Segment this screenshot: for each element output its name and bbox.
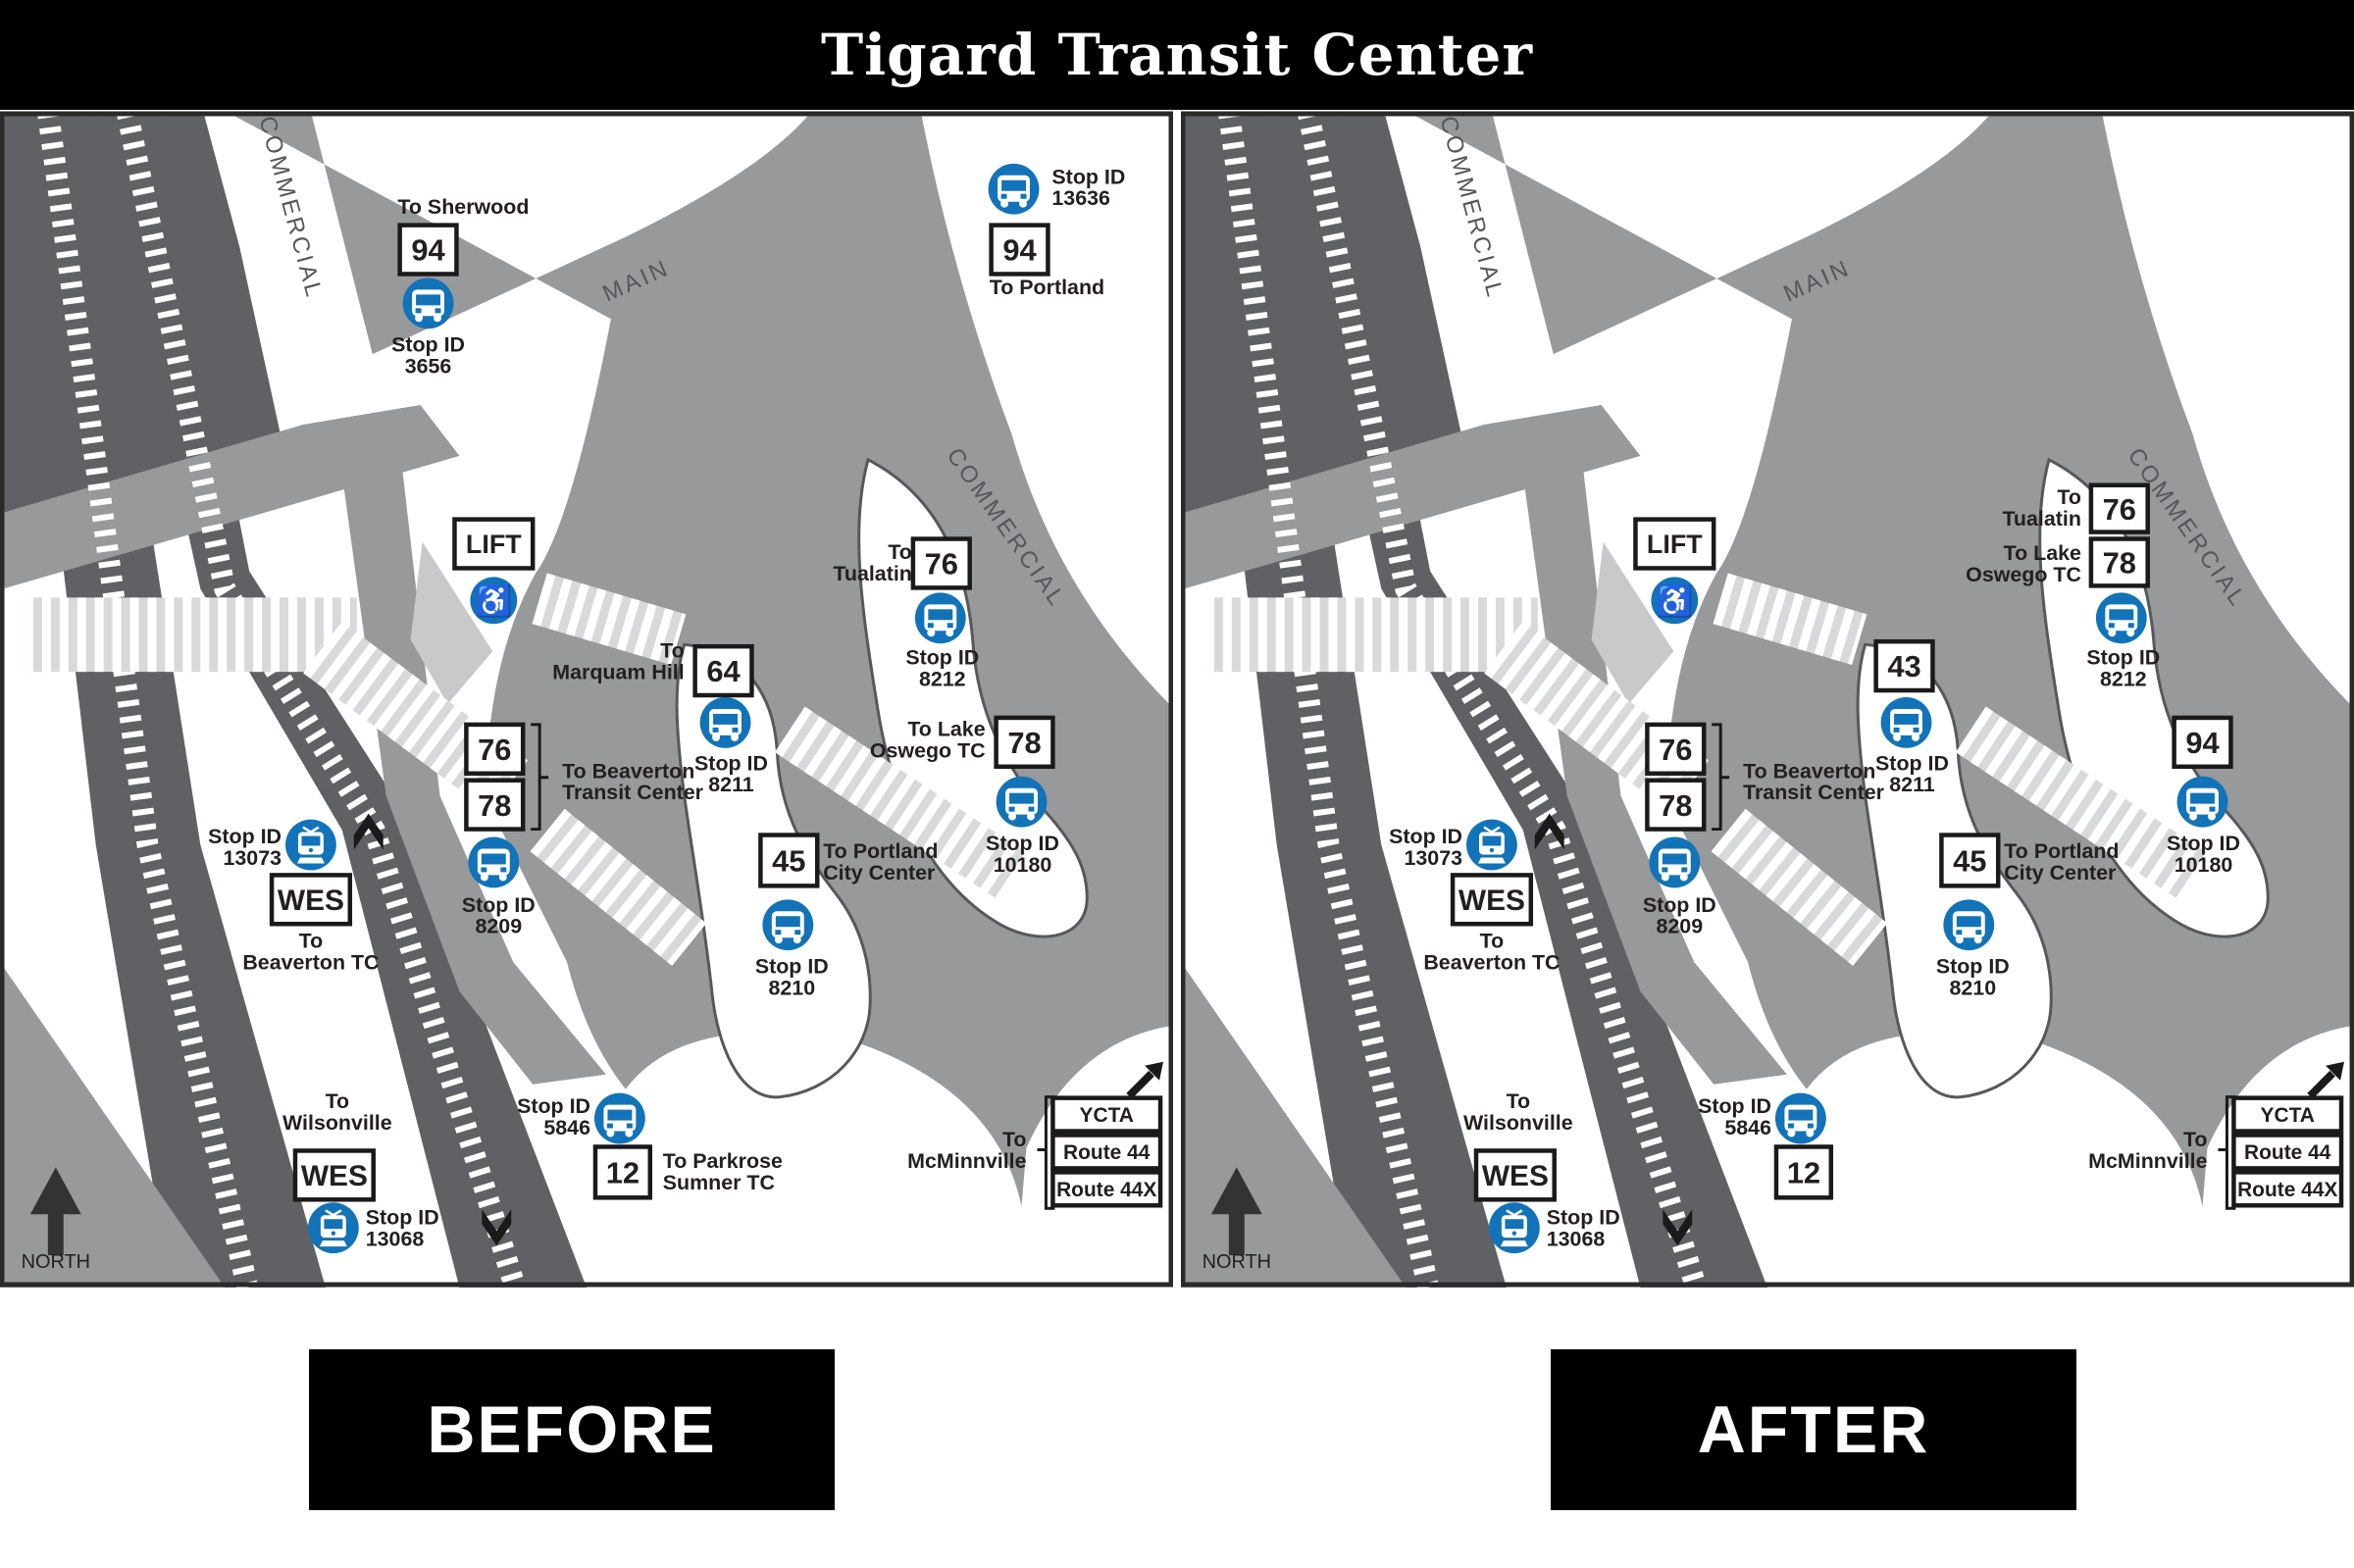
before-label: BEFORE — [427, 1391, 716, 1468]
svg-text:To: To — [2183, 1128, 2208, 1151]
svg-text:Tualatin: Tualatin — [2002, 507, 2080, 531]
map-panel-before: COMMERCIALMAINCOMMERCIALLIFT♿7678To Beav… — [0, 110, 1173, 1290]
after-label: AFTER — [1698, 1391, 1930, 1468]
svg-text:♿: ♿ — [475, 583, 512, 618]
ycta-box: YCTA — [1052, 1098, 1160, 1132]
svg-text:Stop ID: Stop ID — [1936, 955, 2010, 979]
svg-text:To Lake: To Lake — [2004, 541, 2081, 565]
svg-text:Stop ID: Stop ID — [905, 646, 979, 670]
svg-text:8210: 8210 — [768, 977, 815, 1000]
svg-text:To: To — [1002, 1128, 1027, 1151]
svg-text:78: 78 — [2103, 546, 2136, 581]
route-44-box: Route 44 — [2233, 1136, 2341, 1169]
route-44x-box: Route 44X — [2233, 1172, 2341, 1205]
route-box-94-sherwood: 94 — [400, 226, 457, 275]
before-label-box: BEFORE — [309, 1349, 835, 1510]
route-box-45: 45 — [1941, 835, 1998, 886]
svg-text:13636: 13636 — [1051, 186, 1110, 210]
svg-text:City Center: City Center — [823, 861, 935, 885]
page-title: Tigard Transit Center — [821, 22, 1533, 88]
svg-text:Sumner TC: Sumner TC — [663, 1171, 775, 1194]
route-box-78-lake-oswego: 78 — [997, 718, 1053, 767]
rail-stop-icon-13068 — [308, 1202, 359, 1253]
svg-text:To Parkrose: To Parkrose — [663, 1149, 783, 1173]
route-box-94-commercial: 94 — [2175, 718, 2231, 767]
bus-stop-icon-8211 — [700, 697, 751, 748]
svg-text:To Beaverton: To Beaverton — [1743, 759, 1875, 783]
route-box-76-bay: 76 — [1647, 725, 1704, 774]
route-44-box: Route 44 — [1052, 1136, 1160, 1169]
to-beaverton-tc-label: To BeavertonTransit Center — [562, 759, 703, 804]
svg-text:Oswego TC: Oswego TC — [1966, 563, 2081, 586]
bus-stop-icon-8210 — [1943, 899, 1994, 950]
svg-text:76: 76 — [1659, 733, 1692, 767]
svg-text:To Portland: To Portland — [2004, 839, 2119, 863]
bus-stop-icon-3656 — [403, 278, 454, 329]
svg-text:94: 94 — [2185, 726, 2219, 760]
svg-text:Beaverton TC: Beaverton TC — [242, 951, 379, 975]
route-44x-box: Route 44X — [1052, 1172, 1160, 1205]
svg-text:WES: WES — [278, 885, 344, 917]
svg-text:76: 76 — [2103, 492, 2136, 527]
svg-text:LIFT: LIFT — [1647, 530, 1703, 559]
to-beaverton-tc-label: To BeavertonTransit Center — [1743, 759, 1884, 804]
route-box-94-portland: 94 — [992, 226, 1049, 275]
svg-text:5846: 5846 — [1724, 1116, 1771, 1139]
svg-text:To: To — [888, 540, 912, 564]
svg-text:YCTA: YCTA — [2261, 1104, 2315, 1127]
svg-text:WES: WES — [301, 1160, 368, 1192]
transit-map-after: COMMERCIALMAINCOMMERCIALLIFT♿7678To Beav… — [1181, 110, 2354, 1290]
route-box-78-lake-oswego: 78 — [2091, 539, 2148, 586]
route-box-78-bay: 78 — [1647, 781, 1704, 830]
svg-text:NORTH: NORTH — [22, 1251, 90, 1273]
svg-text:5846: 5846 — [543, 1116, 590, 1139]
svg-text:City Center: City Center — [2004, 861, 2116, 885]
svg-text:Stop ID: Stop ID — [1875, 751, 1949, 775]
svg-text:Route 44: Route 44 — [1063, 1141, 1151, 1164]
svg-text:Beaverton TC: Beaverton TC — [1423, 951, 1560, 975]
svg-text:Stop ID: Stop ID — [986, 832, 1059, 855]
svg-text:To: To — [2057, 485, 2081, 509]
page: Tigard Transit Center COMMERCIALMAINCOMM… — [0, 0, 2354, 1568]
to-portland-label: To Portland — [990, 276, 1104, 299]
route-box-12: 12 — [1776, 1146, 1831, 1197]
svg-text:McMinnville: McMinnville — [907, 1149, 1026, 1173]
route-box-64: 64 — [695, 646, 752, 695]
svg-text:Stop ID: Stop ID — [755, 955, 829, 979]
svg-text:13073: 13073 — [1405, 846, 1463, 870]
svg-text:12: 12 — [1787, 1156, 1820, 1190]
svg-text:To Beaverton: To Beaverton — [562, 759, 694, 783]
svg-text:To Portland: To Portland — [823, 839, 938, 863]
svg-text:To Sherwood: To Sherwood — [397, 195, 529, 219]
route-box-76-tualatin: 76 — [913, 539, 970, 588]
svg-text:Stop ID: Stop ID — [1643, 893, 1716, 917]
bus-stop-icon-13636 — [989, 164, 1040, 215]
svg-text:94: 94 — [1002, 233, 1036, 268]
svg-text:13068: 13068 — [366, 1228, 425, 1251]
svg-text:Stop ID: Stop ID — [694, 751, 768, 775]
rail-stop-icon-13073 — [285, 820, 336, 871]
svg-text:To: To — [299, 930, 324, 953]
bus-stop-icon-8211 — [1881, 697, 1932, 748]
bus-stop-icon-8209 — [1649, 837, 1700, 888]
svg-text:Wilsonville: Wilsonville — [282, 1111, 392, 1135]
svg-text:Oswego TC: Oswego TC — [870, 738, 986, 762]
svg-text:LIFT: LIFT — [466, 530, 522, 559]
bus-stop-icon-5846 — [1775, 1093, 1826, 1144]
bus-stop-icon-8212 — [915, 592, 966, 643]
svg-text:43: 43 — [1887, 649, 1920, 683]
wes-box-north: WES — [272, 875, 350, 924]
svg-text:Transit Center: Transit Center — [1743, 781, 1884, 804]
wes-box-south: WES — [1476, 1150, 1555, 1199]
route-box-43: 43 — [1876, 641, 1933, 690]
bus-stop-icon-8210 — [762, 899, 813, 950]
svg-text:WES: WES — [1482, 1160, 1549, 1192]
svg-text:45: 45 — [1953, 844, 1986, 879]
svg-text:YCTA: YCTA — [1080, 1104, 1134, 1127]
map-panel-after: COMMERCIALMAINCOMMERCIALLIFT♿7678To Beav… — [1181, 110, 2354, 1290]
svg-text:94: 94 — [411, 233, 444, 268]
svg-text:Wilsonville: Wilsonville — [1463, 1111, 1573, 1135]
svg-text:To Lake: To Lake — [907, 717, 985, 740]
svg-text:45: 45 — [772, 844, 805, 879]
route-box-78-bay: 78 — [466, 781, 523, 830]
ycta-box: YCTA — [2233, 1098, 2341, 1132]
svg-text:Marquam Hill: Marquam Hill — [552, 661, 684, 684]
svg-text:8212: 8212 — [2100, 668, 2147, 691]
svg-text:Tualatin: Tualatin — [833, 562, 911, 585]
svg-text:13068: 13068 — [1547, 1228, 1606, 1251]
route-box-76-bay: 76 — [466, 725, 523, 774]
svg-text:To Portland: To Portland — [990, 276, 1104, 299]
svg-text:Stop ID: Stop ID — [1389, 825, 1462, 848]
svg-text:Route 44X: Route 44X — [1056, 1179, 1156, 1201]
to-parkrose-sumner-label: To ParkroseSumner TC — [663, 1149, 783, 1194]
svg-text:8211: 8211 — [708, 773, 754, 796]
svg-text:♿: ♿ — [1656, 583, 1693, 618]
transit-map-before: COMMERCIALMAINCOMMERCIALLIFT♿7678To Beav… — [0, 110, 1173, 1290]
lift-box: LIFT — [454, 520, 533, 569]
after-label-box: AFTER — [1551, 1349, 2076, 1510]
north-label: NORTH — [1203, 1251, 1271, 1273]
rail-stop-icon-13073 — [1466, 820, 1517, 871]
bus-stop-icon-8212 — [2096, 592, 2147, 643]
svg-text:Route 44X: Route 44X — [2237, 1179, 2337, 1201]
svg-text:To: To — [1507, 1089, 1531, 1113]
svg-text:10180: 10180 — [2175, 853, 2233, 877]
svg-text:To: To — [1480, 930, 1505, 953]
bus-stop-icon-5846 — [594, 1093, 645, 1144]
svg-text:12: 12 — [606, 1156, 640, 1190]
to-portland-city-center-label: To PortlandCity Center — [823, 839, 938, 885]
bus-stop-icon-10180 — [997, 777, 1048, 828]
svg-text:8209: 8209 — [1656, 915, 1703, 938]
svg-text:10180: 10180 — [994, 853, 1052, 877]
svg-text:Stop ID: Stop ID — [208, 825, 281, 848]
svg-text:8209: 8209 — [475, 915, 522, 938]
title-bar: Tigard Transit Center — [0, 0, 2354, 110]
svg-text:Stop ID: Stop ID — [1698, 1094, 1771, 1118]
svg-text:8210: 8210 — [1949, 977, 1996, 1000]
wheelchair-icon: ♿ — [1651, 577, 1698, 624]
svg-text:8212: 8212 — [919, 668, 966, 691]
north-label: NORTH — [22, 1251, 90, 1273]
route-box-76-tualatin: 76 — [2091, 485, 2148, 532]
svg-text:To: To — [660, 639, 685, 663]
svg-text:Route 44: Route 44 — [2244, 1141, 2331, 1164]
svg-text:Stop ID: Stop ID — [1051, 165, 1125, 188]
bus-stop-icon-8209 — [468, 837, 519, 888]
stop-id-10180-label: Stop ID10180 — [986, 832, 1059, 877]
svg-text:NORTH: NORTH — [1203, 1251, 1271, 1273]
route-box-12: 12 — [595, 1146, 650, 1197]
wheelchair-icon: ♿ — [470, 577, 517, 624]
svg-text:78: 78 — [1659, 788, 1692, 823]
svg-text:WES: WES — [1458, 885, 1525, 917]
svg-text:Stop ID: Stop ID — [462, 893, 536, 917]
wes-box-south: WES — [295, 1150, 374, 1199]
svg-text:Transit Center: Transit Center — [562, 781, 703, 804]
svg-text:Stop ID: Stop ID — [1547, 1206, 1620, 1230]
svg-text:8211: 8211 — [1889, 773, 1935, 796]
svg-text:Stop ID: Stop ID — [517, 1094, 590, 1118]
svg-text:Stop ID: Stop ID — [391, 333, 465, 357]
svg-text:13073: 13073 — [224, 846, 282, 870]
svg-text:To: To — [326, 1089, 350, 1113]
svg-text:78: 78 — [478, 788, 511, 823]
lift-box: LIFT — [1635, 520, 1714, 569]
wes-box-north: WES — [1453, 875, 1531, 924]
svg-text:Stop ID: Stop ID — [366, 1206, 439, 1230]
rail-stop-icon-13068 — [1489, 1202, 1540, 1253]
svg-text:McMinnville: McMinnville — [2088, 1149, 2207, 1173]
svg-text:76: 76 — [925, 547, 958, 582]
svg-text:64: 64 — [706, 654, 740, 688]
svg-text:76: 76 — [478, 733, 511, 767]
svg-text:Stop ID: Stop ID — [2167, 832, 2240, 855]
route-box-45: 45 — [760, 835, 817, 886]
to-portland-city-center-label: To PortlandCity Center — [2004, 839, 2119, 885]
bus-stop-icon-10180 — [2177, 777, 2228, 828]
svg-text:Stop ID: Stop ID — [2086, 646, 2160, 670]
svg-text:78: 78 — [1007, 726, 1041, 760]
to-sherwood-label: To Sherwood — [397, 195, 529, 219]
stop-id-10180-label: Stop ID10180 — [2167, 832, 2240, 877]
svg-text:3656: 3656 — [405, 355, 452, 379]
